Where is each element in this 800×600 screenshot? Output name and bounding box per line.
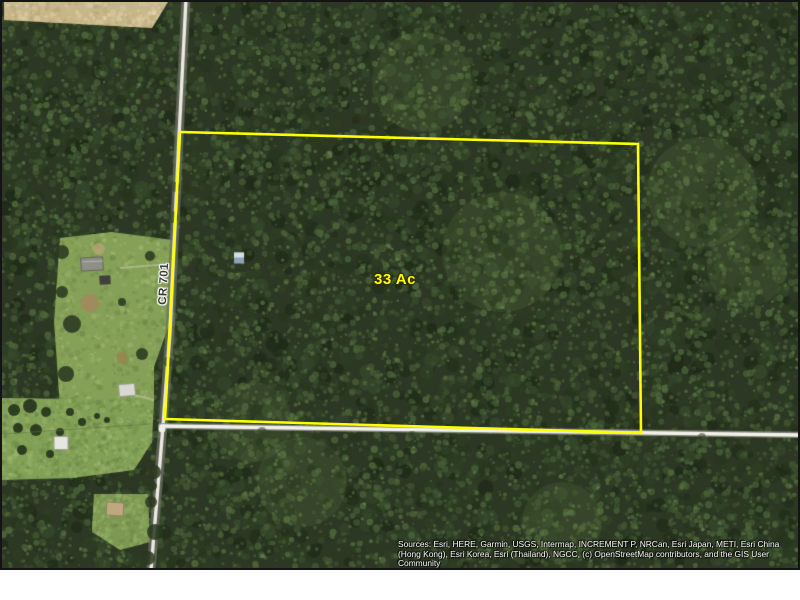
- map-viewport: 33 Ac CR 701 Sources: Esri, HERE, Garmin…: [0, 0, 800, 570]
- road-label: CR 701: [156, 253, 175, 316]
- acreage-label: 33 Ac: [360, 271, 430, 288]
- map-attribution: Sources: Esri, HERE, Garmin, USGS, Inter…: [398, 540, 796, 569]
- footer-bar: N 0 200 400 800 Feet 33 Acres | 2407 Cou…: [0, 570, 800, 600]
- page: 33 Ac CR 701 Sources: Esri, HERE, Garmin…: [0, 0, 800, 600]
